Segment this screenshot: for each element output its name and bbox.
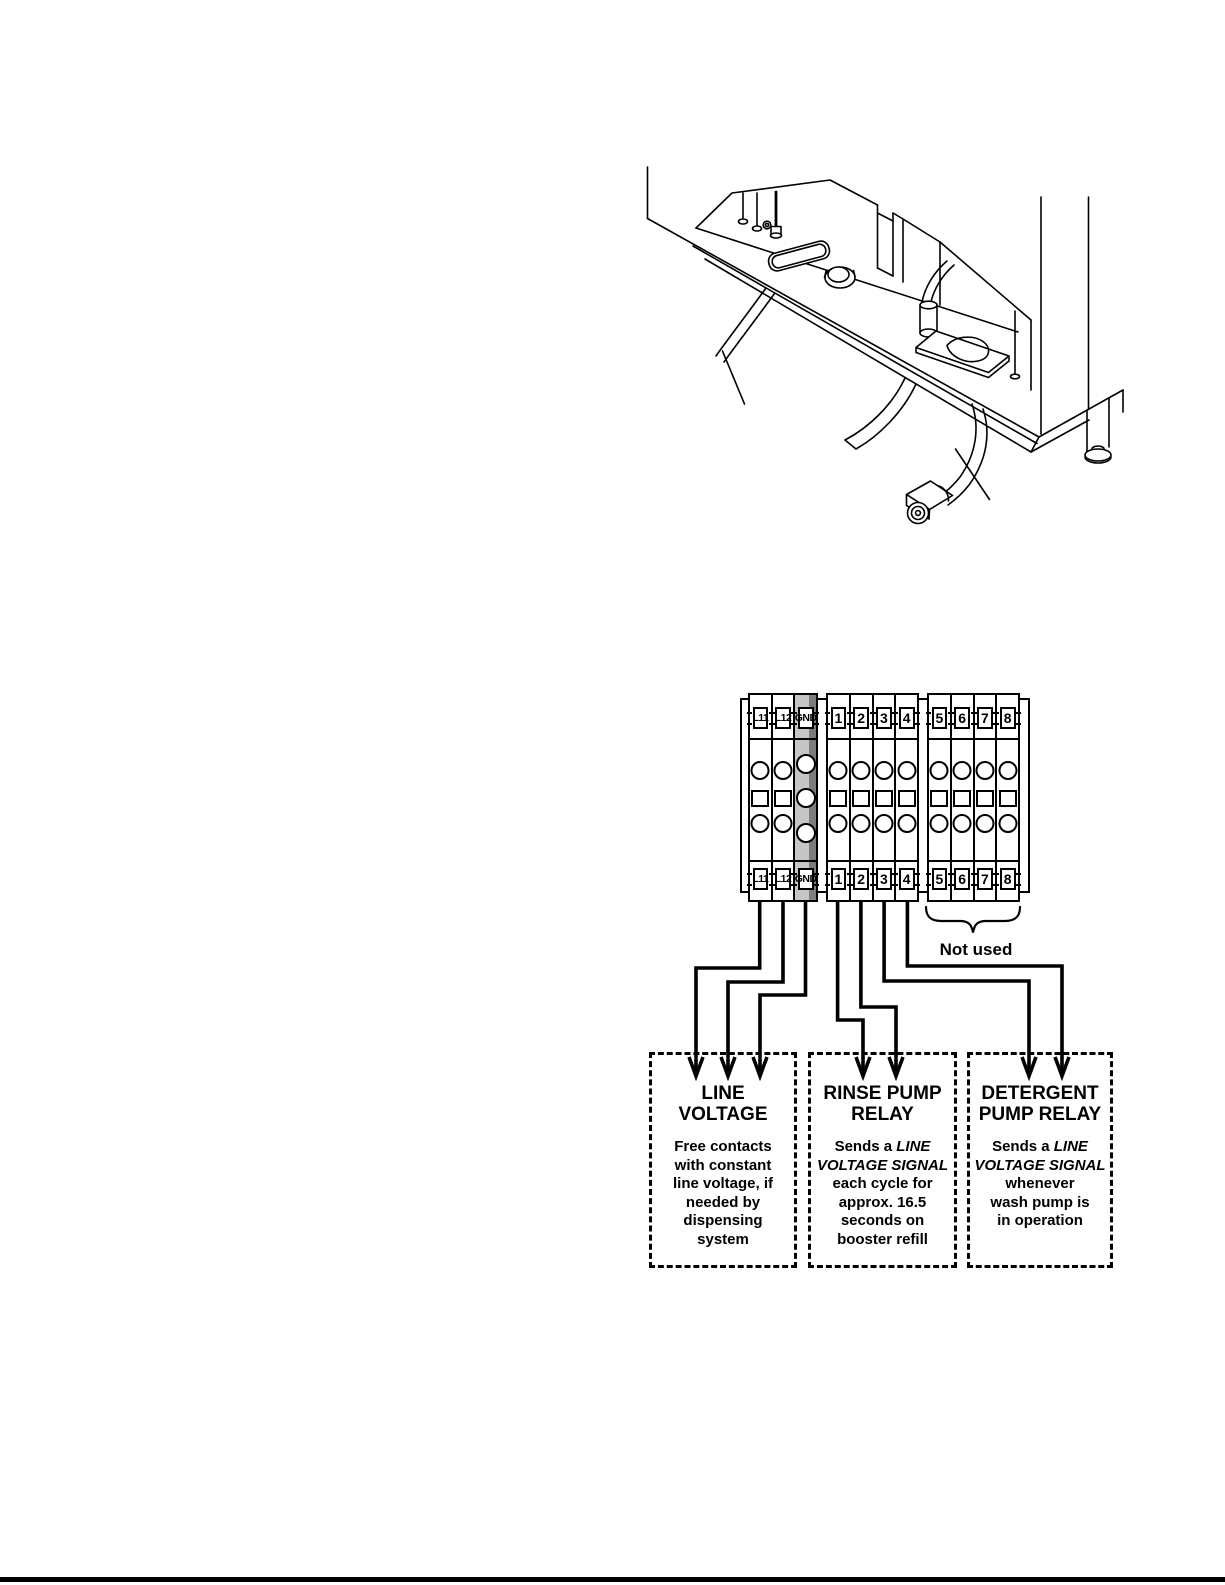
- terminal-label-box: 5: [932, 868, 948, 890]
- screw-mark-icon: [770, 873, 775, 886]
- terminal-label: 2: [857, 871, 865, 887]
- terminal-hole: [930, 761, 949, 780]
- terminal-label-box: 6: [954, 707, 970, 729]
- terminal-label: L12: [775, 712, 792, 724]
- group-divider-line: [750, 738, 816, 740]
- page-footer-rule: [0, 1577, 1225, 1582]
- not-used-brace: [926, 907, 1020, 933]
- terminal-clamp: [953, 790, 971, 807]
- terminal-label-box: 8: [1000, 868, 1016, 890]
- terminal-label: L12: [775, 873, 792, 885]
- terminal-hole: [897, 814, 916, 833]
- terminal-column-2: 2 2: [851, 695, 874, 900]
- terminal-label: 3: [880, 871, 888, 887]
- callout-title: RINSE PUMP RELAY: [811, 1083, 954, 1125]
- terminal-label-box: L11: [753, 868, 769, 890]
- terminal-hole: [829, 814, 848, 833]
- terminal-label-box: L12: [775, 707, 791, 729]
- terminal-column-6: 6 6: [952, 695, 975, 900]
- callout-detergent-pump-relay: DETERGENT PUMP RELAY Sends a LINE VOLTAG…: [967, 1052, 1113, 1268]
- terminal-column-8: 8 8: [997, 695, 1018, 900]
- terminal-hole: [774, 814, 793, 833]
- screw-mark-icon: [915, 712, 920, 725]
- terminal-label-box: 3: [876, 868, 892, 890]
- terminal-label-box: 1: [831, 707, 847, 729]
- terminal-group-relays: 1 1 2 2 3 3 4 4: [826, 693, 919, 902]
- terminal-hole: [829, 761, 848, 780]
- terminal-hole: [874, 761, 893, 780]
- screw-mark-icon: [814, 712, 819, 725]
- terminal-label: 3: [880, 710, 888, 726]
- screw-mark-icon: [893, 712, 898, 725]
- callout-title: LINE VOLTAGE: [652, 1083, 794, 1125]
- screw-mark-icon: [926, 873, 931, 886]
- terminal-column-5: 5 5: [929, 695, 952, 900]
- terminal-hole: [953, 814, 972, 833]
- terminal-hole: [975, 761, 994, 780]
- group-divider-line: [929, 738, 1018, 740]
- screw-mark-icon: [949, 873, 954, 886]
- wire-l12: [728, 902, 783, 1072]
- terminal-label-box: L12: [775, 868, 791, 890]
- screw-mark-icon: [994, 873, 999, 886]
- terminal-label: 1: [834, 871, 842, 887]
- callout-body: Sends a LINE VOLTAGE SIGNAL whenever was…: [972, 1138, 1108, 1231]
- terminal-label-box: 2: [853, 868, 869, 890]
- terminal-clamp: [898, 790, 916, 807]
- terminal-column-7: 7 7: [975, 695, 998, 900]
- terminal-hole: [874, 814, 893, 833]
- terminal-label-box: 1: [831, 868, 847, 890]
- wire-terminal-2: [861, 902, 896, 1072]
- screw-mark-icon: [994, 712, 999, 725]
- screw-mark-icon: [792, 712, 797, 725]
- terminal-label-box: 8: [1000, 707, 1016, 729]
- screw-mark-icon: [825, 873, 830, 886]
- terminal-label-box: 2: [853, 707, 869, 729]
- terminal-hole: [796, 754, 816, 774]
- terminal-label: 7: [981, 710, 989, 726]
- terminal-label-box: 7: [977, 868, 993, 890]
- terminal-label-box: GND: [798, 707, 814, 729]
- screw-mark-icon: [848, 873, 853, 886]
- terminal-clamp: [930, 790, 948, 807]
- terminal-label-box: 3: [876, 707, 892, 729]
- terminal-label: 2: [857, 710, 865, 726]
- terminal-label: 1: [834, 710, 842, 726]
- group-divider-line: [750, 860, 816, 862]
- screw-mark-icon: [926, 712, 931, 725]
- terminal-column-l12: L12 L12: [773, 695, 796, 900]
- screw-mark-icon: [747, 712, 752, 725]
- terminal-label: 6: [958, 710, 966, 726]
- terminal-clamp: [829, 790, 847, 807]
- screw-mark-icon: [848, 712, 853, 725]
- screw-mark-icon: [949, 712, 954, 725]
- terminal-label-box: 5: [932, 707, 948, 729]
- terminal-hole: [975, 814, 994, 833]
- screw-mark-icon: [915, 873, 920, 886]
- terminal-label: 4: [903, 871, 911, 887]
- group-divider-line: [828, 860, 917, 862]
- screw-mark-icon: [814, 873, 819, 886]
- terminal-hole: [774, 761, 793, 780]
- not-used-label: Not used: [916, 940, 1036, 960]
- terminal-clamp: [852, 790, 870, 807]
- screw-mark-icon: [1016, 712, 1021, 725]
- terminal-clamp: [999, 790, 1017, 807]
- screw-mark-icon: [893, 873, 898, 886]
- terminal-label-box: 4: [899, 868, 915, 890]
- terminal-label-box: 7: [977, 707, 993, 729]
- terminal-hole: [751, 761, 770, 780]
- terminal-hole: [796, 823, 816, 843]
- terminal-label: 5: [935, 871, 943, 887]
- screw-mark-icon: [972, 873, 977, 886]
- terminal-hole: [751, 814, 770, 833]
- screw-mark-icon: [747, 873, 752, 886]
- screw-mark-icon: [871, 712, 876, 725]
- diagram-canvas: [0, 0, 1225, 1585]
- terminal-column-4: 4 4: [896, 695, 917, 900]
- machine-underside-illustration: [648, 167, 1124, 524]
- terminal-hole: [998, 761, 1017, 780]
- terminal-hole: [852, 814, 871, 833]
- terminal-group-not-used: 5 5 6 6 7 7 8 8: [927, 693, 1020, 902]
- terminal-label: 5: [935, 710, 943, 726]
- callout-line-voltage: LINE VOLTAGE Free contacts with constant…: [649, 1052, 797, 1268]
- terminal-label: 4: [903, 710, 911, 726]
- manual-page: L11 L11 L12 L12 GND GND 1 1: [0, 0, 1225, 1585]
- terminal-label-box: L11: [753, 707, 769, 729]
- screw-mark-icon: [972, 712, 977, 725]
- terminal-group-line-voltage: L11 L11 L12 L12 GND GND: [748, 693, 818, 902]
- terminal-hole: [852, 761, 871, 780]
- terminal-hole: [953, 761, 972, 780]
- terminal-label-box: 4: [899, 707, 915, 729]
- terminal-label: L11: [752, 873, 768, 885]
- terminal-hole: [796, 788, 816, 808]
- terminal-label-box: 6: [954, 868, 970, 890]
- terminal-clamp: [976, 790, 994, 807]
- screw-mark-icon: [871, 873, 876, 886]
- terminal-clamp: [751, 790, 769, 807]
- screw-mark-icon: [825, 712, 830, 725]
- terminal-column-3: 3 3: [874, 695, 897, 900]
- terminal-label: L11: [752, 712, 768, 724]
- screw-mark-icon: [770, 712, 775, 725]
- terminal-clamp: [774, 790, 792, 807]
- callout-body: Free contacts with constant line voltage…: [654, 1138, 792, 1249]
- callout-title: DETERGENT PUMP RELAY: [970, 1083, 1110, 1125]
- group-divider-line: [828, 738, 917, 740]
- terminal-wires: [696, 902, 1062, 1072]
- screw-mark-icon: [792, 873, 797, 886]
- terminal-label: 7: [981, 871, 989, 887]
- terminal-hole: [897, 761, 916, 780]
- terminal-column-1: 1 1: [828, 695, 851, 900]
- terminal-column-l11: L11 L11: [750, 695, 773, 900]
- terminal-label-box: GND: [798, 868, 814, 890]
- wire-terminal-4: [907, 902, 1062, 1072]
- terminal-clamp: [875, 790, 893, 807]
- callout-rinse-pump-relay: RINSE PUMP RELAY Sends a LINE VOLTAGE SI…: [808, 1052, 957, 1268]
- terminal-hole: [930, 814, 949, 833]
- callout-body: Sends a LINE VOLTAGE SIGNAL each cycle f…: [813, 1138, 952, 1249]
- terminal-column-gnd: GND GND: [795, 695, 816, 900]
- terminal-hole: [998, 814, 1017, 833]
- terminal-label: 8: [1004, 871, 1012, 887]
- screw-mark-icon: [1016, 873, 1021, 886]
- terminal-label: 6: [958, 871, 966, 887]
- group-divider-line: [929, 860, 1018, 862]
- terminal-label: 8: [1004, 710, 1012, 726]
